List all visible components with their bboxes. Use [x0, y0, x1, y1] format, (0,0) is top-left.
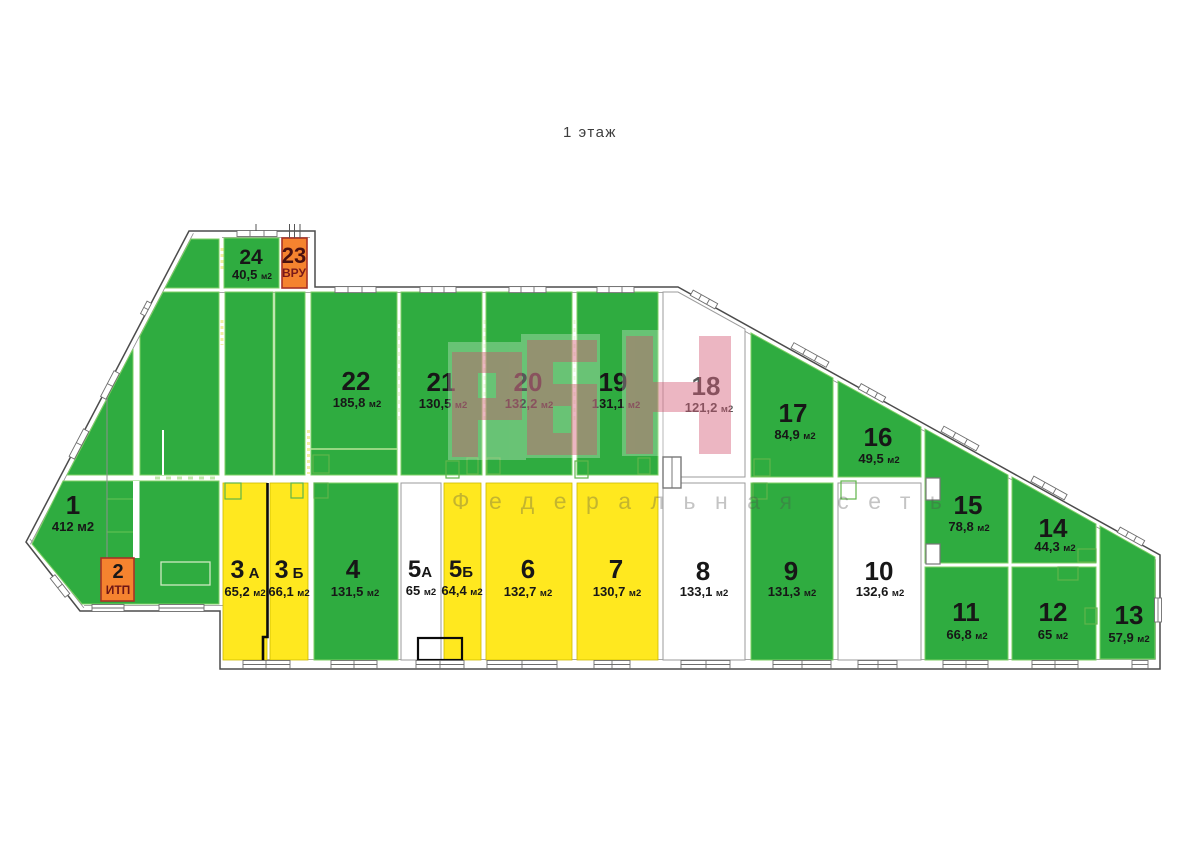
svg-text:412 м2: 412 м2 [52, 519, 94, 534]
svg-text:23: 23 [282, 243, 306, 268]
svg-text:12: 12 [1039, 597, 1068, 627]
svg-text:8: 8 [696, 556, 710, 586]
svg-text:9: 9 [784, 556, 798, 586]
svg-text:1: 1 [66, 490, 80, 520]
svg-text:Федеральная сеть: Федеральная сеть [452, 488, 961, 514]
svg-text:10: 10 [865, 556, 894, 586]
svg-text:16: 16 [864, 422, 893, 452]
svg-text:4: 4 [346, 554, 361, 584]
svg-text:ИТП: ИТП [106, 583, 131, 597]
svg-text:2: 2 [112, 561, 123, 583]
svg-text:6: 6 [521, 554, 535, 584]
svg-text:22: 22 [342, 366, 371, 396]
svg-text:13: 13 [1115, 600, 1144, 630]
svg-text:1 этаж: 1 этаж [563, 124, 617, 141]
svg-text:24: 24 [239, 246, 263, 269]
svg-text:7: 7 [609, 554, 623, 584]
svg-text:17: 17 [779, 398, 808, 428]
svg-text:11: 11 [952, 597, 980, 627]
svg-text:ВРУ: ВРУ [282, 266, 307, 280]
